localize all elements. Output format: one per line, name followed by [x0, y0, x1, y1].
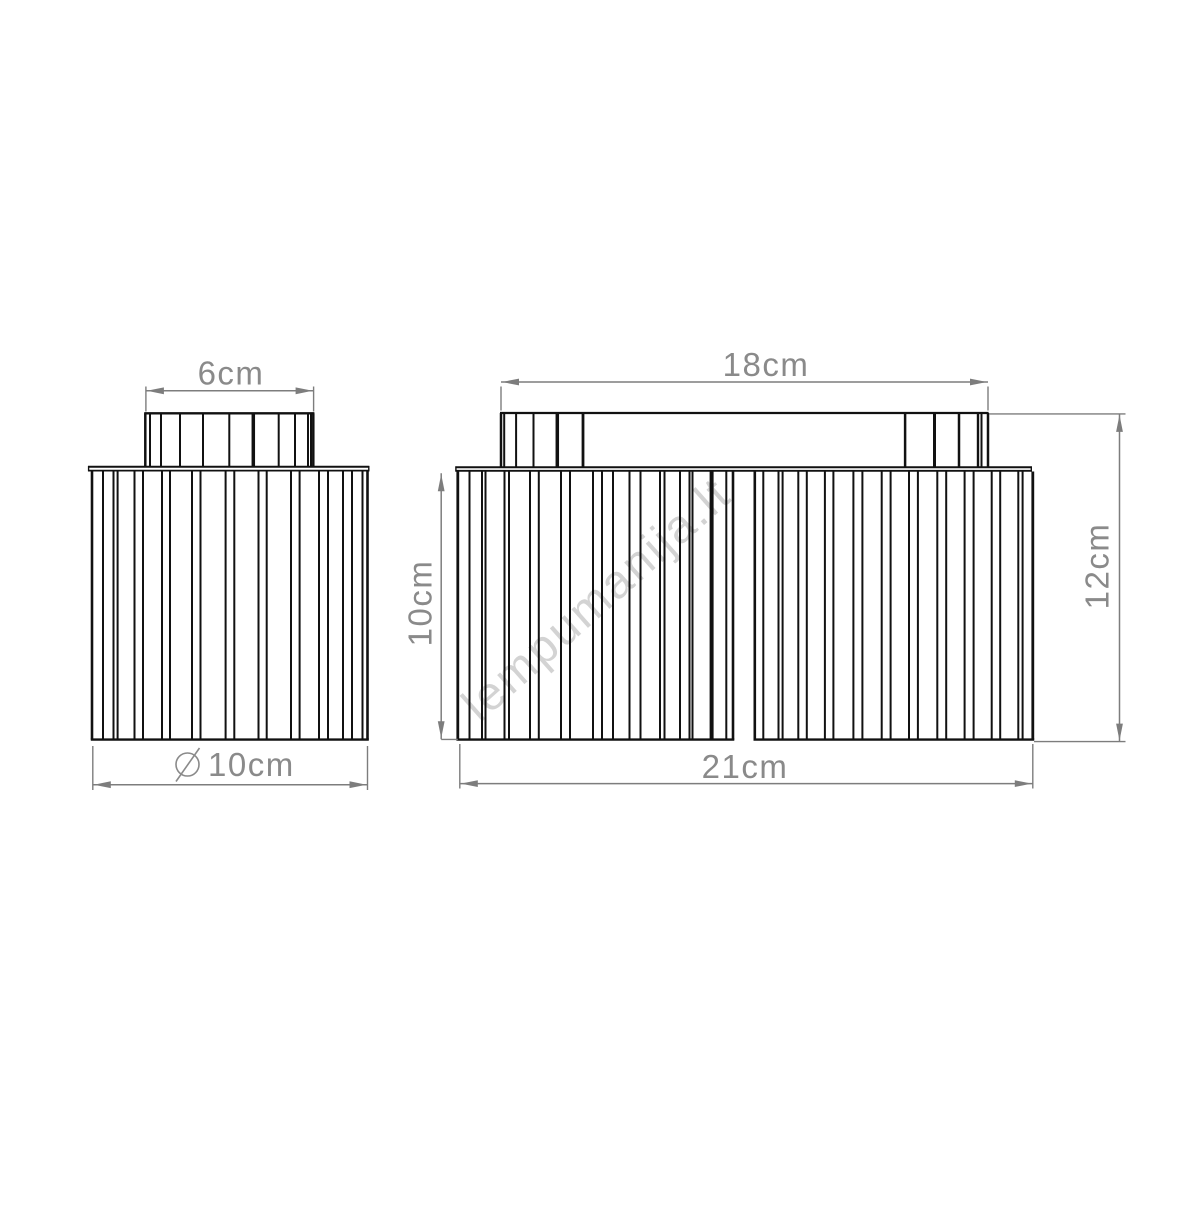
- svg-text:6cm: 6cm: [198, 355, 265, 392]
- svg-text:12cm: 12cm: [1079, 523, 1116, 610]
- svg-text:10cm: 10cm: [402, 560, 439, 647]
- svg-text:18cm: 18cm: [723, 346, 810, 383]
- svg-text:10cm: 10cm: [208, 746, 295, 783]
- svg-text:21cm: 21cm: [702, 748, 789, 785]
